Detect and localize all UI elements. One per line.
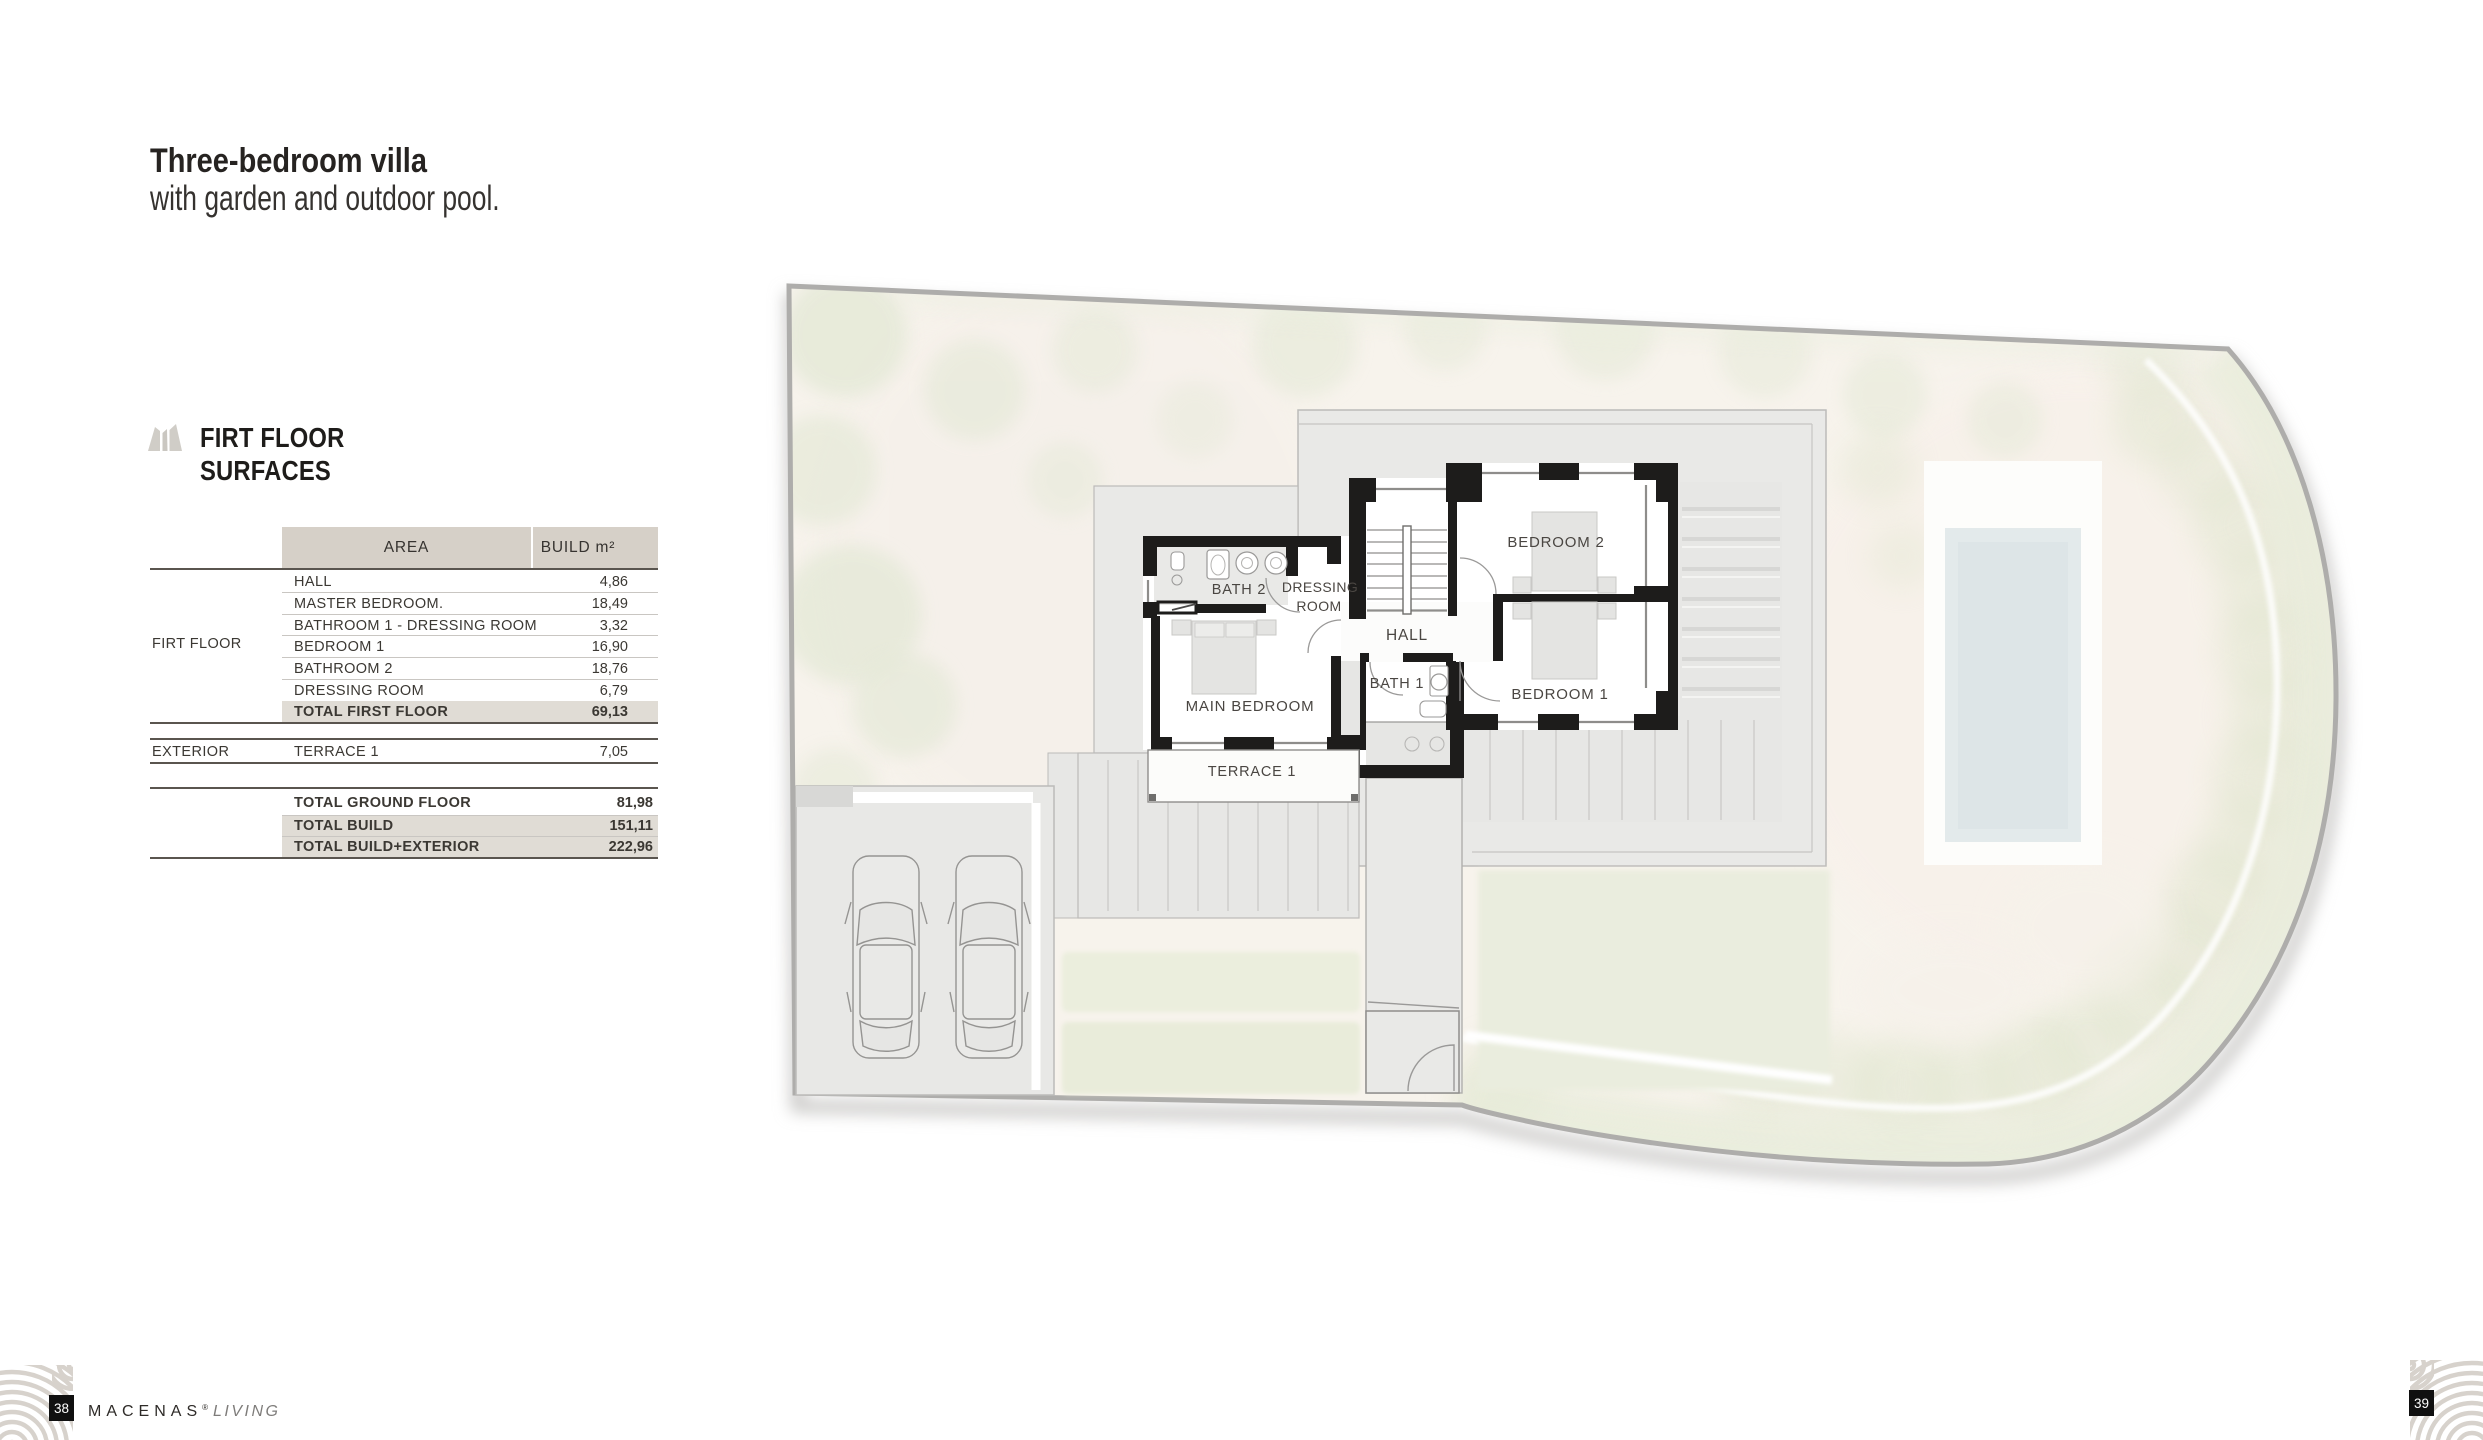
svg-text:BEDROOM 2: BEDROOM 2 bbox=[1507, 534, 1604, 551]
svg-text:HALL: HALL bbox=[1386, 627, 1428, 644]
svg-text:BATH 2: BATH 2 bbox=[1212, 582, 1267, 598]
svg-text:DRESSING: DRESSING bbox=[1282, 579, 1358, 595]
svg-text:TERRACE 1: TERRACE 1 bbox=[1208, 764, 1297, 780]
svg-text:MAIN BEDROOM: MAIN BEDROOM bbox=[1186, 698, 1315, 715]
svg-text:BATH 1: BATH 1 bbox=[1370, 676, 1425, 692]
svg-text:BEDROOM 1: BEDROOM 1 bbox=[1511, 686, 1608, 703]
svg-text:ROOM: ROOM bbox=[1296, 598, 1341, 614]
